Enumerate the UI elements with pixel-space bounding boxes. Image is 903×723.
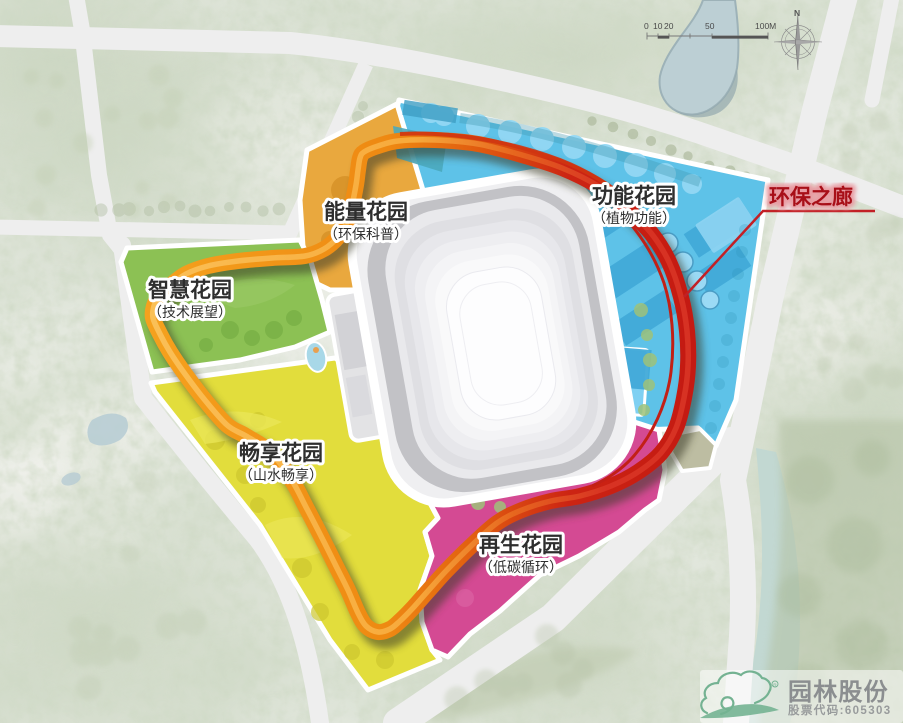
svg-text:（技术展望）: （技术展望） bbox=[148, 304, 232, 320]
svg-text:环保之廊: 环保之廊 bbox=[769, 185, 853, 209]
svg-text:（低碳循环）: （低碳循环） bbox=[479, 559, 563, 575]
svg-text:功能花园: 功能花园 bbox=[592, 184, 676, 208]
svg-text:0: 0 bbox=[644, 21, 649, 31]
svg-text:N: N bbox=[794, 8, 800, 18]
svg-text:再生花园: 再生花园 bbox=[479, 533, 563, 557]
svg-text:10: 10 bbox=[653, 21, 663, 31]
svg-text:50: 50 bbox=[705, 21, 715, 31]
svg-text:畅享花园: 畅享花园 bbox=[239, 441, 323, 465]
svg-text:（植物功能）: （植物功能） bbox=[592, 210, 676, 226]
svg-text:股票代码:605303: 股票代码:605303 bbox=[788, 703, 892, 717]
svg-text:100M: 100M bbox=[755, 21, 776, 31]
svg-text:智慧花园: 智慧花园 bbox=[148, 278, 232, 302]
svg-text:园林股份: 园林股份 bbox=[788, 679, 889, 706]
svg-text:能量花园: 能量花园 bbox=[324, 200, 408, 224]
svg-text:（环保科普）: （环保科普） bbox=[324, 226, 408, 242]
svg-text:R: R bbox=[773, 682, 777, 688]
svg-text:20: 20 bbox=[664, 21, 674, 31]
svg-text:（山水畅享）: （山水畅享） bbox=[239, 467, 323, 483]
